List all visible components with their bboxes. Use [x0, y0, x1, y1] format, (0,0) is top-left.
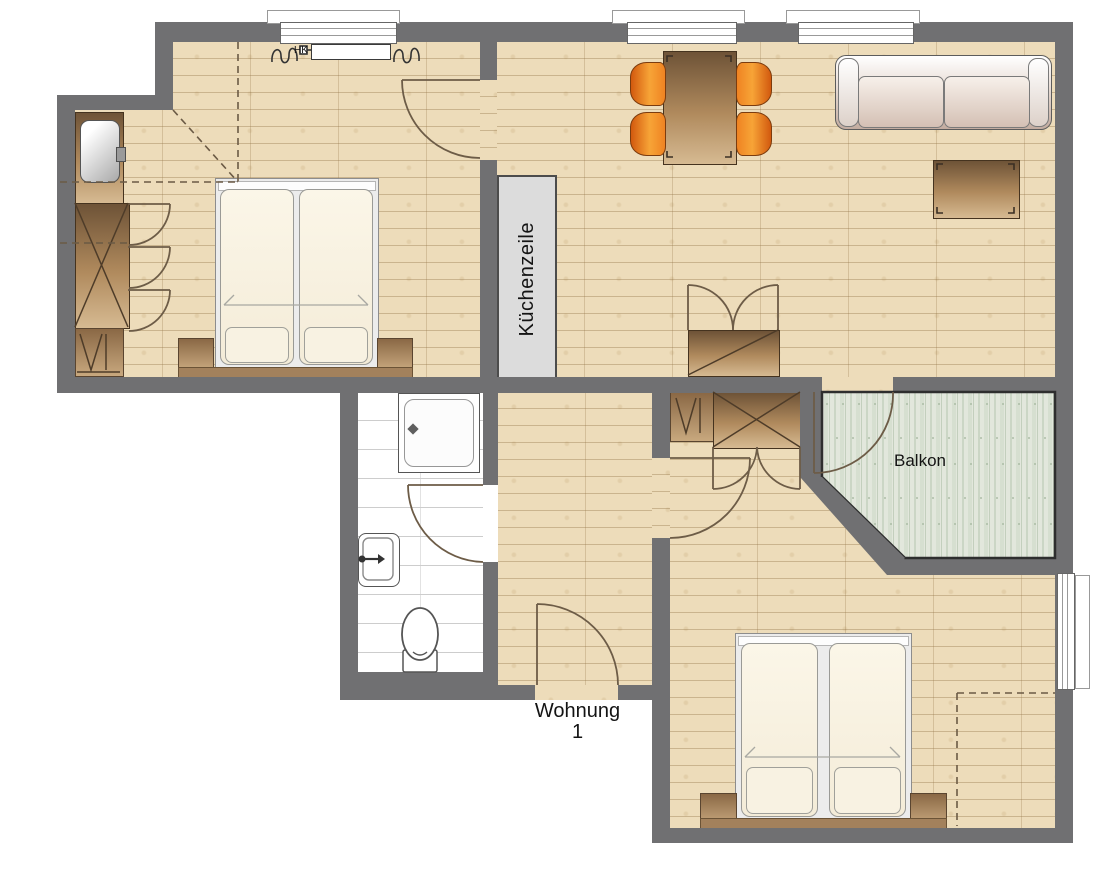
- door-swing-bathroom: [408, 485, 483, 562]
- entrance-label-line2: 1: [510, 722, 645, 743]
- door-swing-bedroom1: [402, 80, 480, 158]
- balcony-label: Balkon: [875, 451, 965, 471]
- faucet-icon: [378, 554, 385, 564]
- table-corner-marks: [937, 164, 1014, 213]
- shower-drain-icon: [407, 423, 418, 434]
- luggage-rack-mark: [77, 334, 120, 372]
- wardrobe-folding-doors: [128, 204, 170, 331]
- cabinet-diagonal-mark: [688, 330, 778, 375]
- radiator-coil-icon: [394, 48, 419, 62]
- door-swing-entrance: [537, 604, 618, 685]
- cabinet-double-doors: [688, 285, 778, 330]
- dashed-line: [173, 110, 238, 182]
- entrance-label-line1: Wohnung: [510, 701, 645, 722]
- duvet-fold: [224, 295, 368, 305]
- table-corner-marks: [667, 56, 731, 157]
- door-swing-bedroom2: [670, 458, 750, 538]
- duvet-fold: [745, 747, 900, 757]
- wardrobe-folding-doors: [713, 447, 800, 489]
- radiator-label: HK: [294, 45, 308, 56]
- plan-symbols: [0, 0, 1100, 878]
- wardrobe-x-mark: [713, 392, 800, 447]
- toilet-bowl: [402, 608, 438, 660]
- floor-plan: Küchenzeile: [0, 0, 1100, 878]
- entrance-label: Wohnung 1: [510, 701, 645, 743]
- luggage-rack-mark: [676, 398, 700, 433]
- wardrobe-x-mark: [75, 203, 128, 327]
